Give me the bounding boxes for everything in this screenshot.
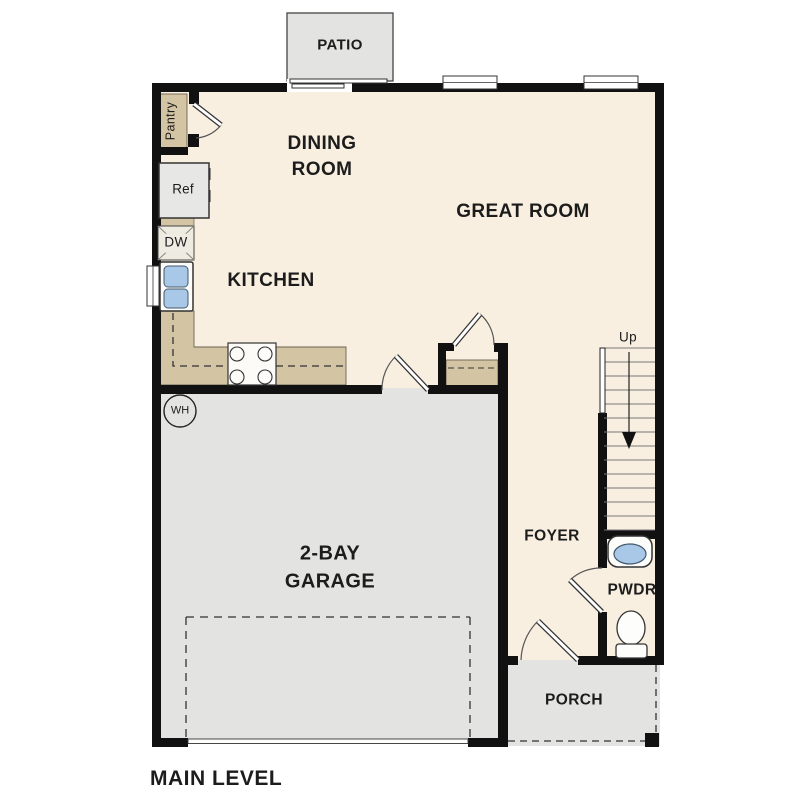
stair-railing (600, 348, 605, 413)
powder-sink (608, 536, 652, 567)
wall-pantry-jamb-top (189, 92, 199, 104)
pantry-label: Pantry (162, 102, 179, 141)
wall-closet-jamb-left (438, 343, 454, 351)
powder-room-label: PWDR (608, 579, 657, 600)
kitchen-label: KITCHEN (227, 268, 314, 294)
porch-label: PORCH (545, 689, 603, 710)
floor-plan: PATIO DINING ROOM GREAT ROOM KITCHEN 2-B… (0, 0, 810, 810)
garage-door (188, 739, 468, 744)
wall-garage-bottom-right (468, 738, 508, 747)
stove (228, 343, 276, 385)
great-room-label: GREAT ROOM (456, 199, 589, 225)
refrigerator-label: Ref (172, 181, 194, 200)
wall-pantry-bottom (152, 147, 188, 155)
coat-closet-shelf (446, 360, 498, 386)
wall-kitchen-garage-left (152, 385, 382, 394)
wall-garage-divider (498, 345, 508, 747)
wall-pantry-jamb-bottom (188, 134, 199, 147)
wall-foyer-right-lower (598, 612, 607, 656)
wall-foyer-bottom-left (498, 656, 518, 665)
foyer-label: FOYER (524, 525, 579, 546)
garage-label: 2-BAY GARAGE (285, 540, 375, 595)
dishwasher-label: DW (163, 234, 188, 253)
wall-top-left (152, 83, 287, 92)
water-heater-label: WH (171, 403, 189, 418)
counter-strip (158, 218, 194, 226)
wall-garage-bottom-left (152, 738, 188, 747)
page-title: MAIN LEVEL (150, 765, 282, 794)
wall-right (655, 83, 664, 665)
kitchen-sink (160, 262, 193, 311)
wall-foyer-right-upper (598, 413, 607, 568)
stairs-up-label: Up (619, 329, 637, 348)
dining-room-label: DINING ROOM (288, 131, 357, 183)
floor-plan-drawing (0, 0, 810, 810)
porch-post (645, 733, 659, 747)
patio-label: PATIO (317, 36, 363, 57)
toilet (616, 611, 647, 658)
